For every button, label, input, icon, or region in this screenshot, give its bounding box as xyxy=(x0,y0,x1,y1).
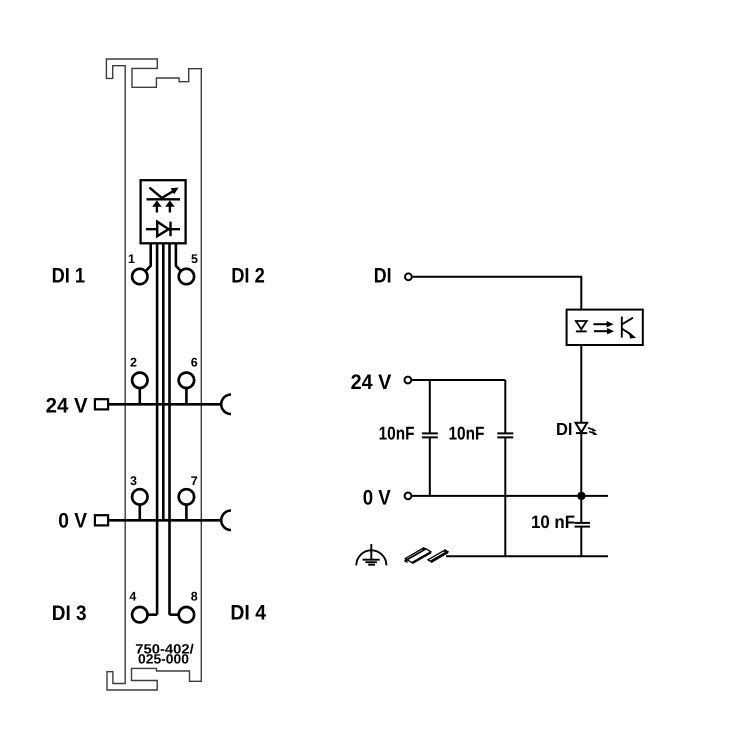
svg-text:0 V: 0 V xyxy=(58,509,87,532)
svg-text:10nF: 10nF xyxy=(449,422,485,443)
svg-text:2: 2 xyxy=(130,355,137,369)
svg-text:10nF: 10nF xyxy=(379,422,415,443)
svg-text:0 V: 0 V xyxy=(363,486,391,509)
svg-text:DI 3: DI 3 xyxy=(52,602,87,625)
svg-text:5: 5 xyxy=(191,252,198,266)
svg-text:6: 6 xyxy=(191,356,198,370)
svg-text:3: 3 xyxy=(130,474,137,488)
svg-text:DI: DI xyxy=(374,265,392,288)
svg-text:DI 2: DI 2 xyxy=(231,264,265,287)
svg-text:24 V: 24 V xyxy=(351,371,392,394)
svg-text:7: 7 xyxy=(191,474,198,488)
svg-text:10 nF: 10 nF xyxy=(531,512,575,532)
svg-text:DI: DI xyxy=(556,419,573,439)
svg-text:8: 8 xyxy=(191,590,198,604)
svg-text:025-000: 025-000 xyxy=(138,651,189,666)
svg-text:DI 4: DI 4 xyxy=(230,602,266,625)
svg-text:4: 4 xyxy=(129,590,136,604)
svg-text:1: 1 xyxy=(128,252,135,266)
svg-text:24 V: 24 V xyxy=(46,395,88,418)
svg-text:DI 1: DI 1 xyxy=(52,265,86,288)
